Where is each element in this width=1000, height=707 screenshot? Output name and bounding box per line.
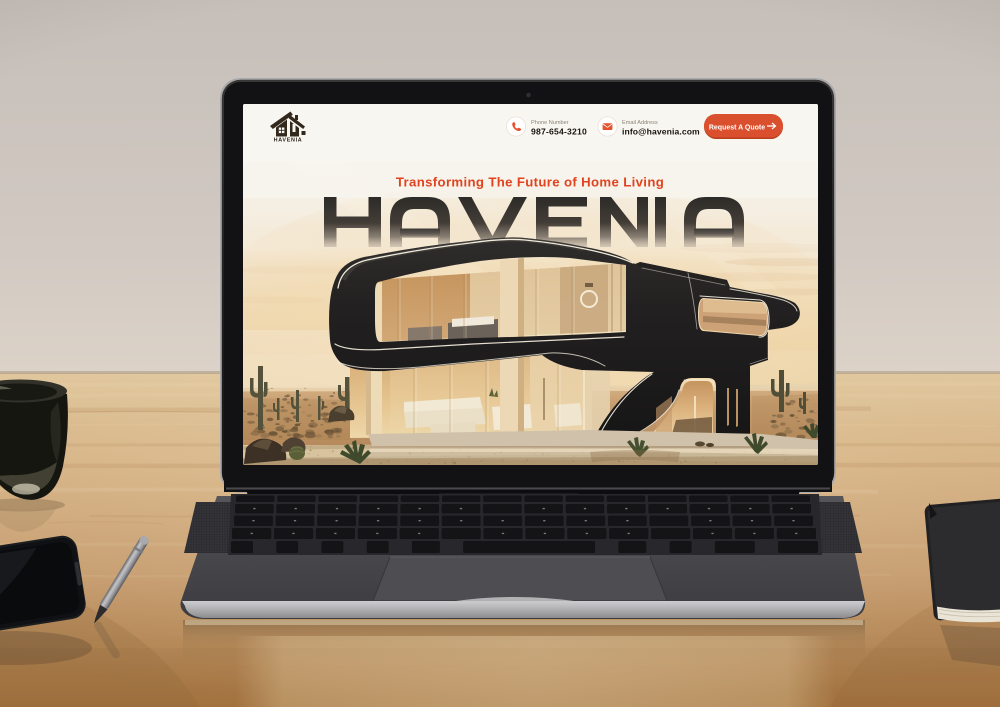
svg-text:Request A Quote: Request A Quote <box>709 125 765 132</box>
svg-text:Transforming The Future of Hom: Transforming The Future of Home Living <box>396 175 664 190</box>
svg-text:987-654-3210: 987-654-3210 <box>531 127 587 137</box>
svg-text:Email Address: Email Address <box>622 120 658 126</box>
svg-text:HAVENIA: HAVENIA <box>274 138 303 144</box>
svg-text:info@havenia.com: info@havenia.com <box>622 127 700 137</box>
svg-text:Phone Number: Phone Number <box>531 120 569 126</box>
